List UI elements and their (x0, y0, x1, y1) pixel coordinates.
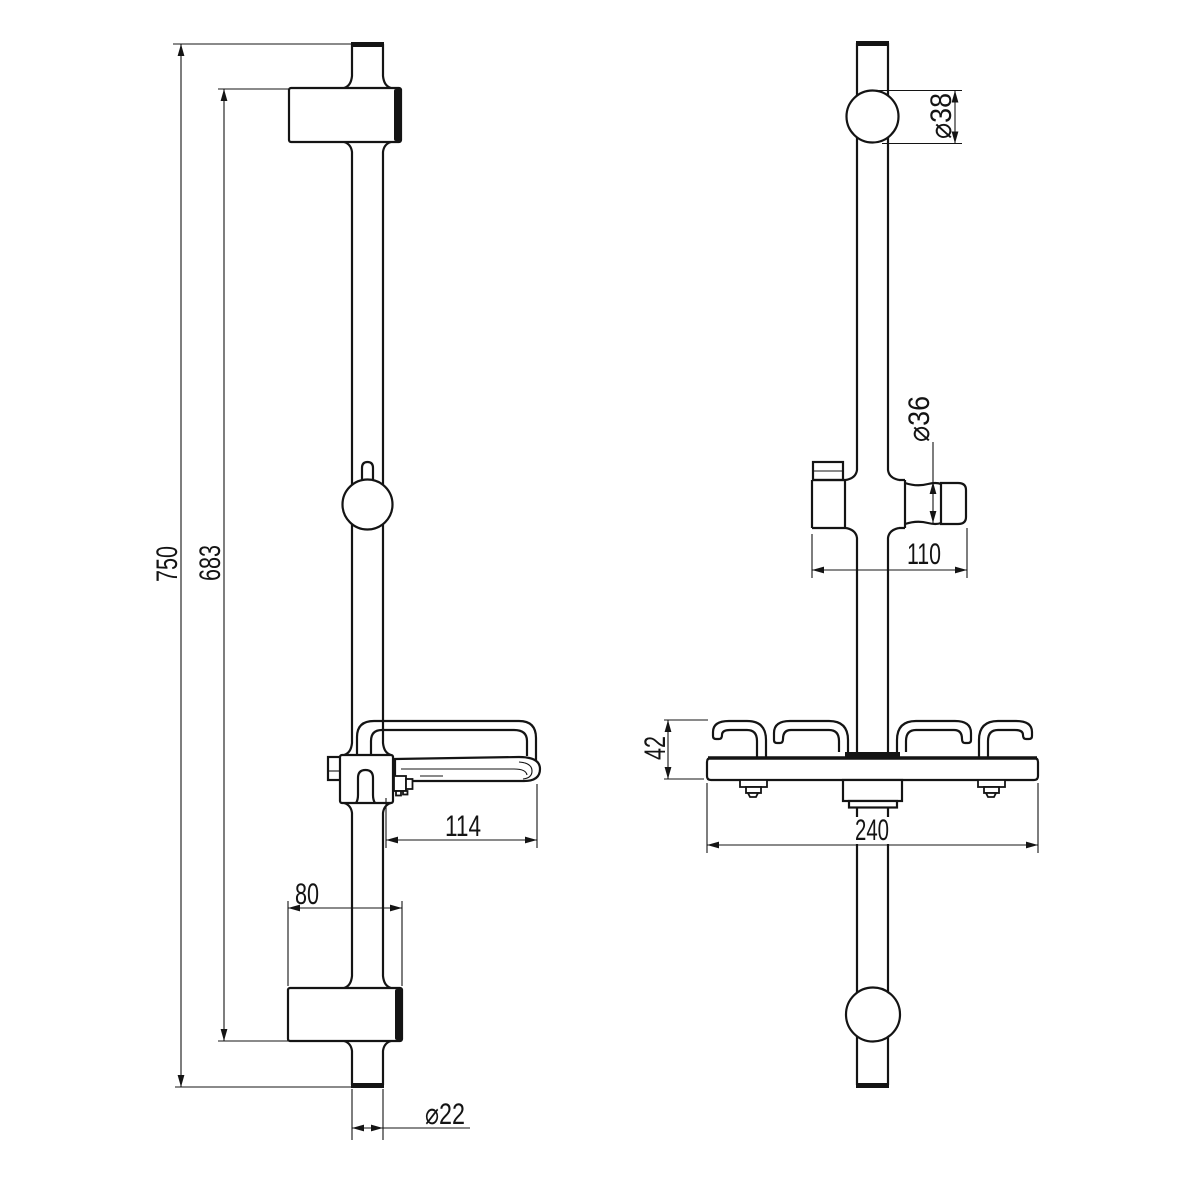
front-dish-screw-step (406, 779, 413, 789)
dimension-114: 114 (386, 784, 537, 848)
front-rail-top-cap (351, 42, 384, 47)
arrow-down-icon (665, 767, 672, 779)
arrow-right-icon (1026, 842, 1038, 849)
shelf-hook-right-outer (979, 721, 1032, 758)
front-view (288, 42, 540, 1088)
shelf-hook-left-outer (713, 721, 766, 758)
side-rail-top-cap (856, 41, 889, 46)
front-bottom-bracket-wall-plate (395, 989, 402, 1040)
arrow-right-icon (525, 837, 537, 844)
front-dish-screw-foot-left (396, 791, 401, 796)
front-knob-stem (362, 462, 373, 480)
dim-label-683: 683 (194, 545, 227, 581)
shelf-tray (707, 758, 1038, 780)
holder-cup-top-edge (905, 483, 941, 485)
dim-label-114: 114 (445, 810, 481, 843)
shelf-rail-flange (845, 752, 900, 758)
dim-label-d38: ⌀38 (925, 93, 958, 139)
arrow-down-icon (930, 511, 937, 523)
arrow-left-icon (386, 837, 398, 844)
arrow-left-icon (812, 567, 824, 574)
arrow-left-icon (707, 842, 719, 849)
front-rail-right-edge (383, 44, 391, 1085)
shelf-center-bracket (843, 780, 902, 801)
front-rail-bottom-cap (351, 1083, 384, 1088)
dimension-750: 750 (151, 44, 351, 1087)
dim-label-d22: ⌀22 (425, 1098, 465, 1131)
front-clamp-body (340, 755, 393, 803)
dimension-683: 683 (194, 89, 290, 1041)
holder-cup-end-cap (941, 483, 966, 524)
dimension-d36: ⌀36 (903, 396, 936, 523)
front-knob (343, 480, 393, 530)
front-dish-screw-block (394, 776, 406, 791)
arrow-right-icon (390, 905, 402, 912)
side-view (707, 41, 1038, 1088)
arrow-up-icon (221, 89, 228, 101)
dim-label-42: 42 (639, 736, 672, 760)
dimension-d22: ⌀22 (352, 1089, 470, 1140)
arrow-up-icon (178, 44, 185, 56)
shelf-center-bracket-step (849, 801, 897, 808)
shelf-foot-right (978, 780, 1005, 787)
front-top-bracket-wall-plate (394, 89, 401, 141)
arrow-down-icon (178, 1075, 185, 1087)
shelf-foot-right-tip (986, 793, 996, 797)
front-rail-left-edge (344, 44, 352, 1085)
technical-drawing-canvas: 750 683 114 80 ⌀22 (0, 0, 1200, 1200)
dim-label-80: 80 (295, 878, 319, 911)
front-dish-loop-inner (371, 730, 527, 756)
shelf-foot-left-tip (748, 793, 758, 797)
dimension-80: 80 (288, 878, 402, 986)
shelf-hook-right-inner (897, 721, 971, 752)
arrow-left-icon (352, 1125, 364, 1132)
arrow-right-icon (955, 567, 967, 574)
shelf-foot-left (740, 780, 767, 787)
arrow-down-icon (221, 1029, 228, 1041)
front-top-bracket (289, 88, 401, 142)
side-rail-bottom-cap (856, 1083, 889, 1088)
dim-label-d36: ⌀36 (903, 396, 936, 442)
shelf-hook-left-inner (774, 721, 848, 752)
dim-label-240: 240 (855, 814, 889, 847)
front-dish-screw-foot-right (403, 791, 408, 795)
arrow-right-icon (371, 1125, 383, 1132)
holder-cup-bottom-edge (905, 522, 941, 524)
dim-label-110: 110 (907, 538, 941, 571)
side-knob-top (847, 91, 899, 143)
side-rail-left-edge (846, 43, 857, 1085)
side-knob-bottom (846, 988, 900, 1042)
dim-label-750: 750 (151, 546, 184, 582)
arrow-up-icon (665, 720, 672, 732)
dimension-42: 42 (639, 720, 708, 779)
front-bottom-bracket (288, 988, 402, 1041)
side-rail-right-edge (888, 43, 899, 1085)
